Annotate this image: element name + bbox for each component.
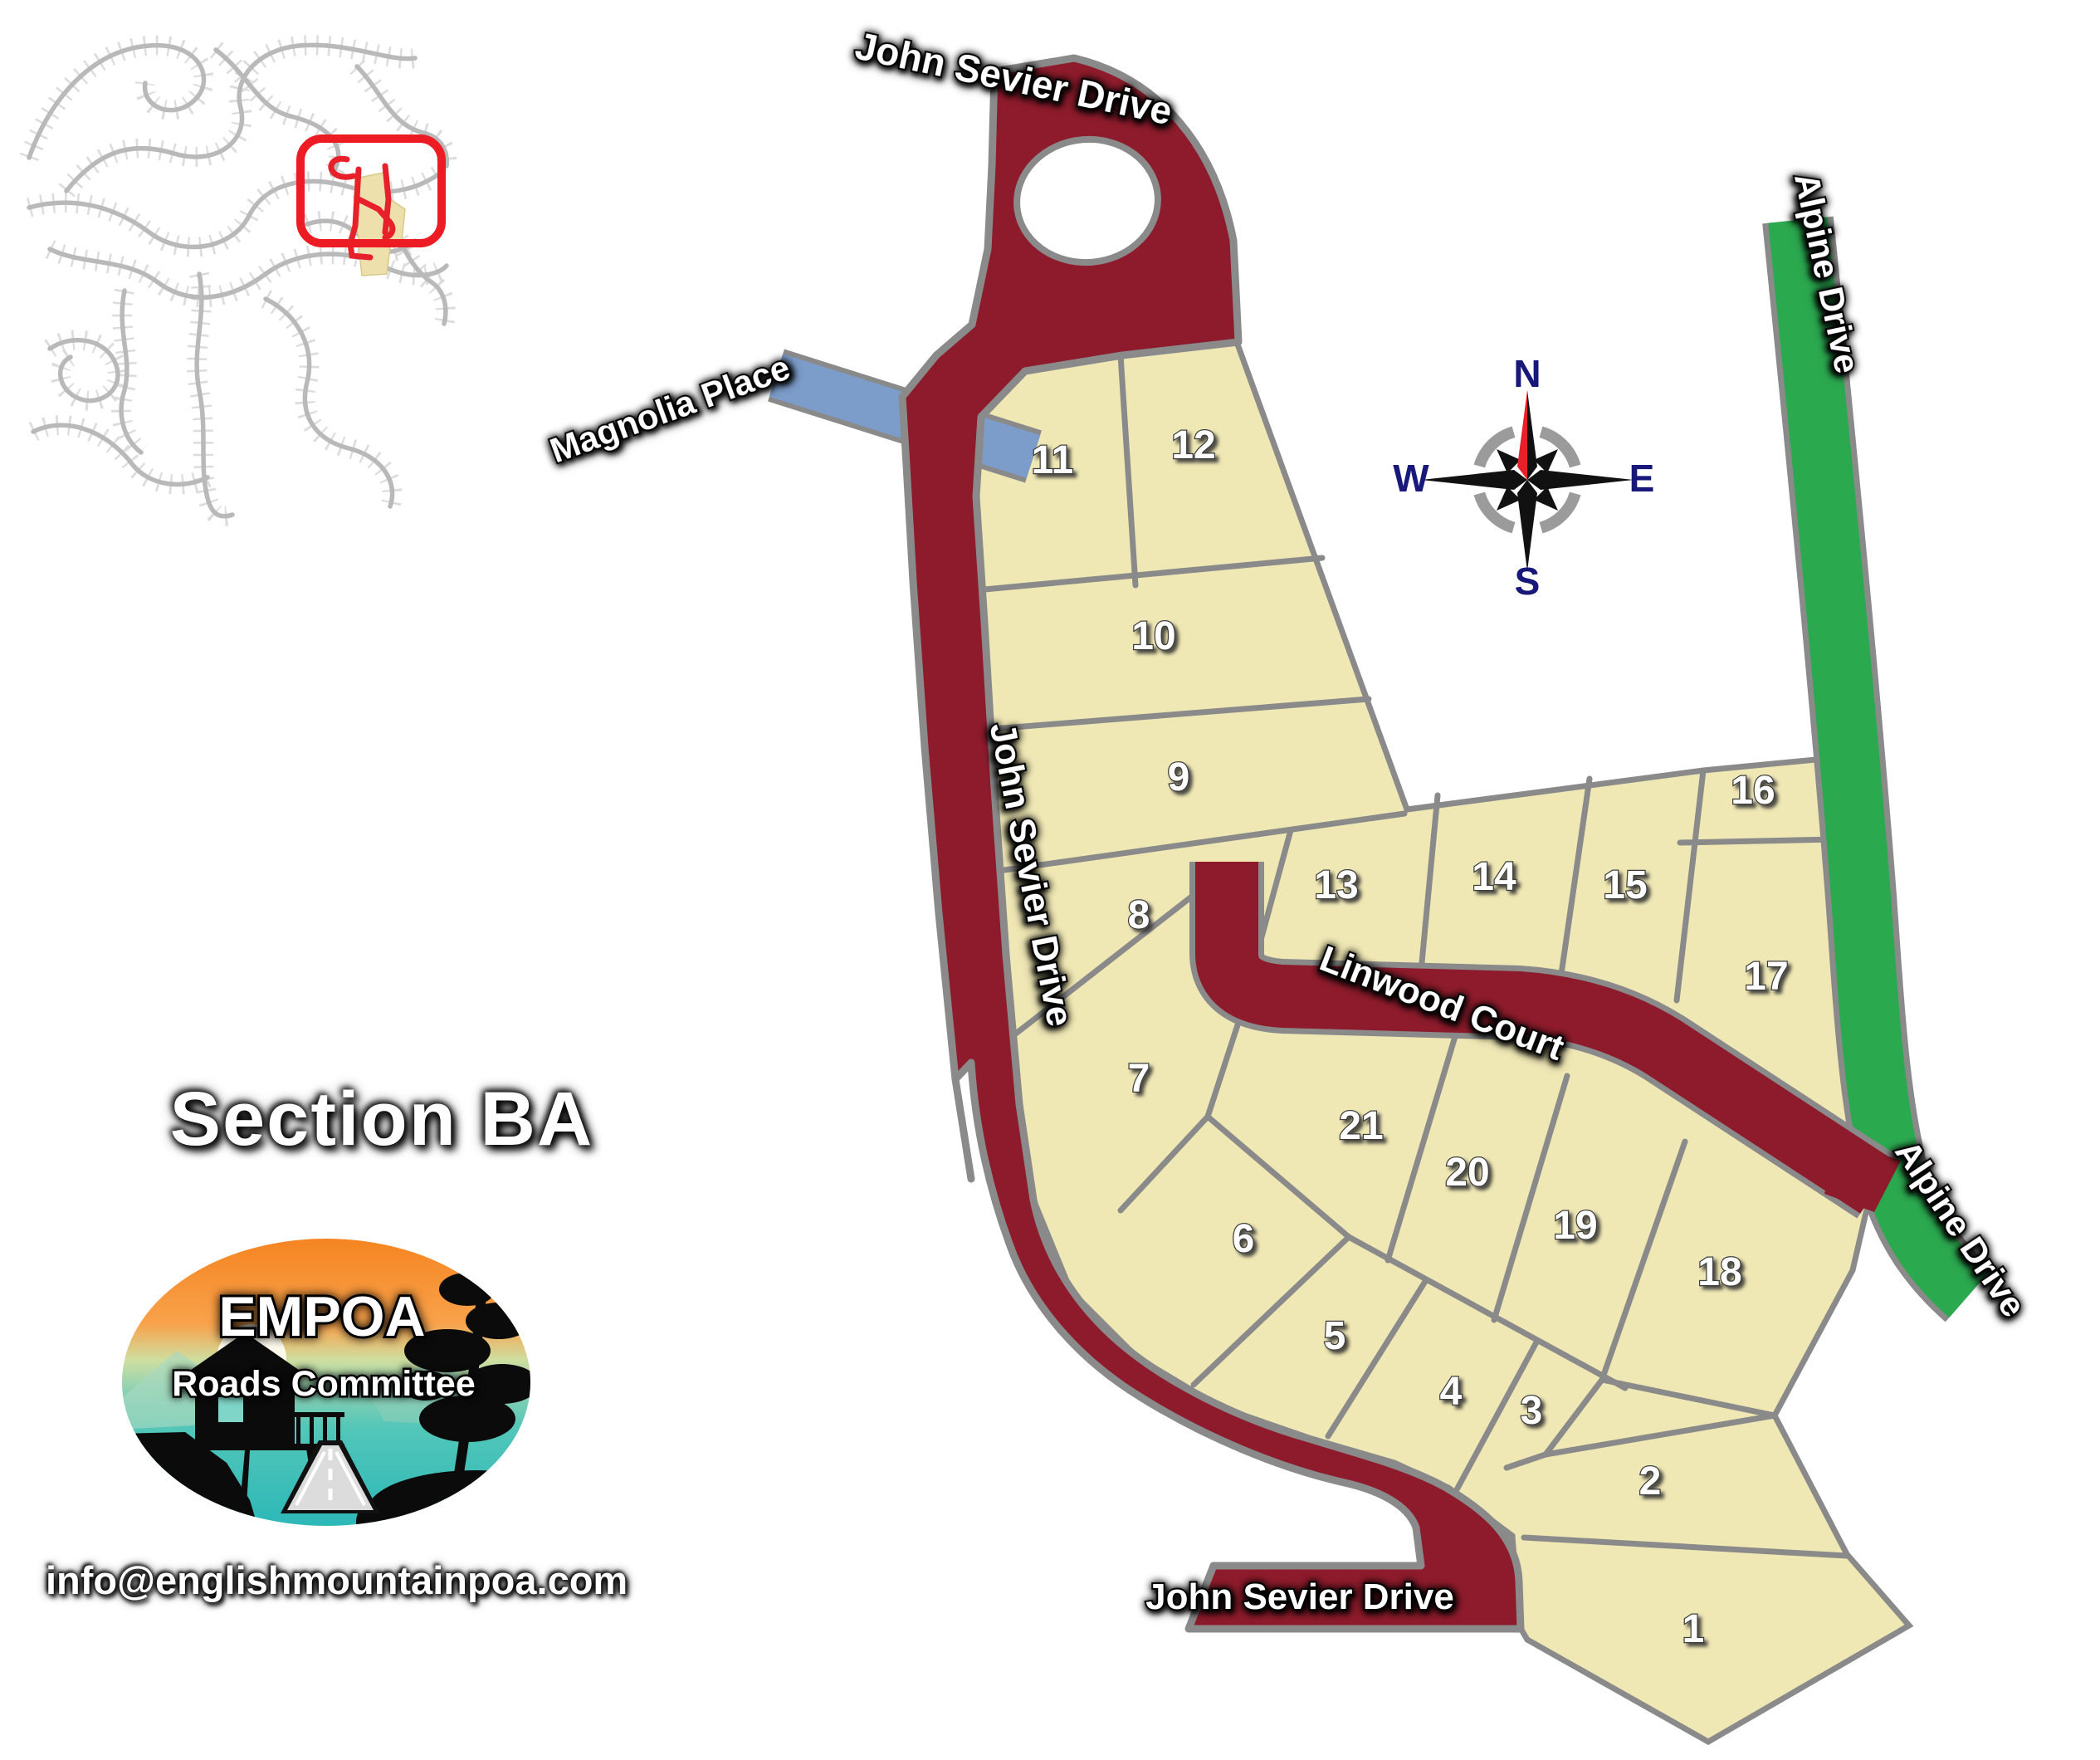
logo-org-name: EMPOA [218,1285,425,1348]
lot-number-16: 16 [1731,769,1775,813]
compass-label-north: N [1513,352,1541,395]
inset-road-ticks [29,45,447,516]
lot-number-17: 17 [1744,955,1788,999]
overview-inset-map [29,45,447,516]
page-title: Section BA [125,1076,639,1163]
lot-number-6: 6 [1233,1217,1255,1261]
logo-committee-name: Roads Committee [172,1364,476,1404]
compass-label-south: S [1515,560,1541,603]
lot-number-1: 1 [1682,1607,1705,1651]
lot-number-3: 3 [1521,1389,1543,1433]
lot-number-15: 15 [1603,863,1647,907]
lot-number-10: 10 [1131,614,1175,658]
contact-email: info@englishmountainpoa.com [46,1557,494,1603]
empoa-roads-committee-logo: EMPOA Roads Committee [119,1234,534,1533]
lot-number-18: 18 [1697,1250,1741,1294]
lot-number-4: 4 [1440,1370,1463,1414]
lot-number-8: 8 [1128,893,1150,937]
lot-number-5: 5 [1324,1314,1346,1358]
compass-rose: N S W E [1393,352,1654,603]
road-label-john-sevier-bottom: John Sevier Drive [1145,1577,1454,1617]
lot-number-9: 9 [1168,755,1190,799]
lot-number-21: 21 [1339,1104,1383,1148]
lot-number-12: 12 [1171,423,1215,467]
lot-number-14: 14 [1472,855,1516,899]
compass-needle-north [1517,390,1527,480]
lot-number-19: 19 [1553,1204,1597,1248]
road-label-magnolia-place: Magnolia Place [545,347,794,470]
compass-label-west: W [1393,457,1429,500]
compass-star [1421,390,1634,571]
page: N S W E John Sevier DriveJohn Sevier Dri… [0,0,2100,1760]
lot-number-13: 13 [1314,863,1358,907]
lot-number-11: 11 [1032,438,1074,482]
lot-number-20: 20 [1445,1151,1489,1195]
inset-roads [29,45,447,516]
lot-number-7: 7 [1128,1057,1150,1101]
lot-number-2: 2 [1639,1459,1662,1503]
compass-label-east: E [1629,457,1655,500]
inset-highlight-lots-lower [359,246,390,276]
